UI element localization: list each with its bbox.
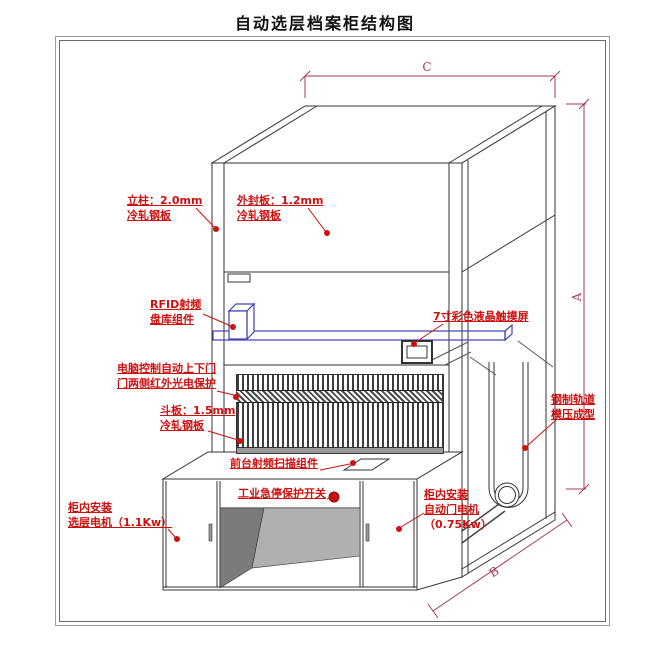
diagram-page: 自动选层档案柜结构图 bbox=[0, 0, 650, 650]
annotation-layer-motor: 柜内安装 选层电机（1.1Kw） bbox=[68, 500, 172, 530]
annotation-waifengban: 外封板：1.2mm 冷轧钢板 bbox=[237, 193, 323, 223]
roller-shutter-door bbox=[236, 374, 444, 450]
left-door-handle bbox=[209, 524, 212, 541]
shutter-bottom-rail bbox=[236, 447, 444, 454]
picker-rail bbox=[213, 331, 505, 340]
cabinet-line-art bbox=[0, 0, 650, 650]
touch-screen-inner bbox=[407, 346, 427, 358]
annotation-lizhu: 立柱：2.0mm 冷轧钢板 bbox=[127, 193, 202, 223]
annotation-estop: 工业急停保护开关 bbox=[238, 486, 326, 501]
annotation-door-motor: 柜内安装 自动门电机 （0.75Kw） bbox=[424, 487, 492, 532]
right-door-handle bbox=[366, 524, 369, 541]
annotation-computer-door: 电脑控制自动上下门 门两侧红外光电保护 bbox=[117, 361, 216, 391]
emergency-stop-button bbox=[329, 492, 339, 502]
annotation-rfid: RFID射频 盘库组件 bbox=[150, 297, 201, 327]
annotation-touchscreen: 7寸彩色液晶触摸屏 bbox=[433, 309, 529, 324]
annotation-front-scanner: 前台射频扫描组件 bbox=[230, 456, 318, 471]
infrared-protection-band bbox=[236, 390, 442, 403]
rfid-box-side bbox=[247, 304, 254, 339]
annotation-rail-track: 钢制轨道 模压成型 bbox=[551, 392, 595, 422]
annotation-douban: 斗板：1.5mm 冷轧钢板 bbox=[160, 403, 235, 433]
rfid-box-front bbox=[229, 311, 247, 339]
vent-slot bbox=[228, 274, 250, 282]
